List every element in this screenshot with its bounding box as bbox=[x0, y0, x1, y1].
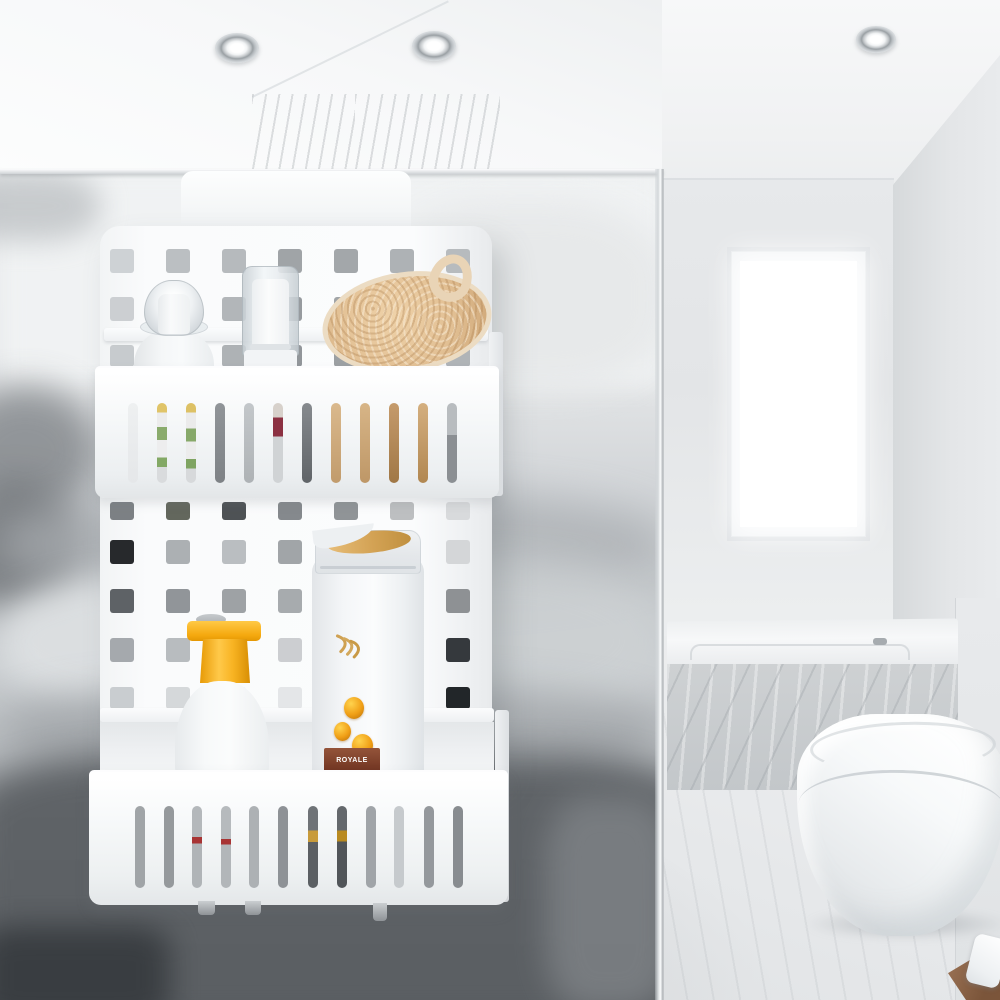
marble-shower-column-left-face bbox=[252, 94, 355, 176]
upper-basket-slot-11 bbox=[418, 403, 428, 483]
caddy-hole-r4-c2 bbox=[166, 502, 190, 520]
caddy-hole-r5-c7 bbox=[446, 540, 470, 564]
caddy-hole-r6-c4 bbox=[278, 589, 302, 613]
yellow-bottle-cap-flange bbox=[187, 621, 261, 641]
lower-basket-interior bbox=[100, 722, 494, 774]
caddy-hole-r1-c1 bbox=[110, 249, 134, 273]
bathtub-drain-fitting bbox=[873, 638, 887, 645]
upper-basket-slot-3 bbox=[186, 403, 196, 483]
lower-basket-slot-2 bbox=[164, 806, 174, 888]
ceiling-spotlight-3 bbox=[856, 26, 896, 53]
caddy-hole-r5-c3 bbox=[222, 540, 246, 564]
upper-basket-slot-6 bbox=[273, 403, 283, 483]
caddy-hole-r7-c2 bbox=[166, 638, 190, 662]
caddy-hole-r6-c7 bbox=[446, 589, 470, 613]
lower-basket-slot-10 bbox=[394, 806, 404, 888]
window-glass bbox=[740, 261, 857, 527]
caddy-hole-r4-c6 bbox=[390, 502, 414, 520]
caddy-hole-r1-c5 bbox=[334, 249, 358, 273]
caddy-hole-r1-c6 bbox=[390, 249, 414, 273]
lower-basket-slot-5 bbox=[249, 806, 259, 888]
upper-basket-slot-2 bbox=[157, 403, 167, 483]
bathtub-inner-edge bbox=[690, 644, 910, 660]
caddy-hole-r4-c5 bbox=[334, 502, 358, 520]
caddy-drain-nub-1 bbox=[198, 901, 215, 915]
caddy-hole-r6-c1 bbox=[110, 589, 134, 613]
lower-basket-slot-11 bbox=[424, 806, 434, 888]
upper-basket-slot-7 bbox=[302, 403, 312, 483]
glass-screen-side-edge bbox=[655, 169, 664, 1000]
caddy-drain-nub-3 bbox=[373, 903, 387, 921]
caddy-hole-r8-c7 bbox=[446, 687, 470, 709]
lower-basket-slot-6 bbox=[278, 806, 288, 888]
caddy-hole-r4-c7 bbox=[446, 502, 470, 520]
upper-basket-slot-12 bbox=[447, 403, 457, 483]
caddy-hole-r4-c4 bbox=[278, 502, 302, 520]
caddy-hole-r5-c2 bbox=[166, 540, 190, 564]
bathroom-product-photo: ROYALE bbox=[0, 0, 1000, 1000]
caddy-hole-r7-c1 bbox=[110, 638, 134, 662]
upper-basket-slot-10 bbox=[389, 403, 399, 483]
caddy-hole-r1-c2 bbox=[166, 249, 190, 273]
lower-basket-slot-7 bbox=[308, 806, 318, 888]
marble-shower-column-right-face bbox=[355, 94, 500, 176]
lower-basket-front bbox=[89, 770, 508, 905]
upper-basket-front bbox=[95, 366, 499, 498]
upper-basket-slot-1 bbox=[128, 403, 138, 483]
yellow-bottle-cap-neck bbox=[200, 639, 250, 683]
caddy-hole-r4-c1 bbox=[110, 502, 134, 520]
caddy-hole-r7-c7 bbox=[446, 638, 470, 662]
ceiling-spotlight-1 bbox=[215, 33, 259, 63]
shampoo-cap-lid-line bbox=[320, 566, 416, 569]
caddy-hole-r5-c1 bbox=[110, 540, 134, 564]
upper-basket-slot-9 bbox=[360, 403, 370, 483]
glass-blur-shape-3 bbox=[0, 171, 100, 241]
caddy-hole-r1-c3 bbox=[222, 249, 246, 273]
clear-bottle-pump bbox=[158, 294, 190, 334]
glass-blur-shape-11 bbox=[0, 926, 170, 1000]
lower-basket-slot-9 bbox=[366, 806, 376, 888]
lower-basket-slot-4 bbox=[221, 806, 231, 888]
caddy-hole-r6-c3 bbox=[222, 589, 246, 613]
shampoo-amber-drop-2 bbox=[334, 722, 351, 741]
lower-basket-slot-1 bbox=[135, 806, 145, 888]
ceiling-spotlight-2 bbox=[412, 31, 456, 61]
caddy-hole-r3-c1 bbox=[110, 345, 134, 367]
caddy-hole-r4-c3 bbox=[222, 502, 246, 520]
upper-basket-slot-4 bbox=[215, 403, 225, 483]
caddy-hole-r5-c4 bbox=[278, 540, 302, 564]
upper-basket-slot-8 bbox=[331, 403, 341, 483]
lower-basket-back-rail bbox=[100, 708, 494, 722]
caddy-drain-nub-2 bbox=[245, 901, 261, 915]
pump-dispenser-pump bbox=[252, 279, 289, 353]
upper-basket-slot-5 bbox=[244, 403, 254, 483]
caddy-hole-r6-c2 bbox=[166, 589, 190, 613]
shampoo-label: ROYALE bbox=[324, 748, 380, 772]
caddy-hole-r7-c4 bbox=[278, 638, 302, 662]
caddy-hole-r8-c1 bbox=[110, 687, 134, 709]
lower-basket-slot-12 bbox=[453, 806, 463, 888]
glass-blur-shape-12 bbox=[545, 796, 663, 1000]
lower-basket-slot-8 bbox=[337, 806, 347, 888]
caddy-hole-r8-c4 bbox=[278, 687, 302, 709]
caddy-hole-r2-c1 bbox=[110, 297, 134, 321]
lower-basket-slot-3 bbox=[192, 806, 202, 888]
shampoo-amber-drop-1 bbox=[344, 697, 364, 719]
